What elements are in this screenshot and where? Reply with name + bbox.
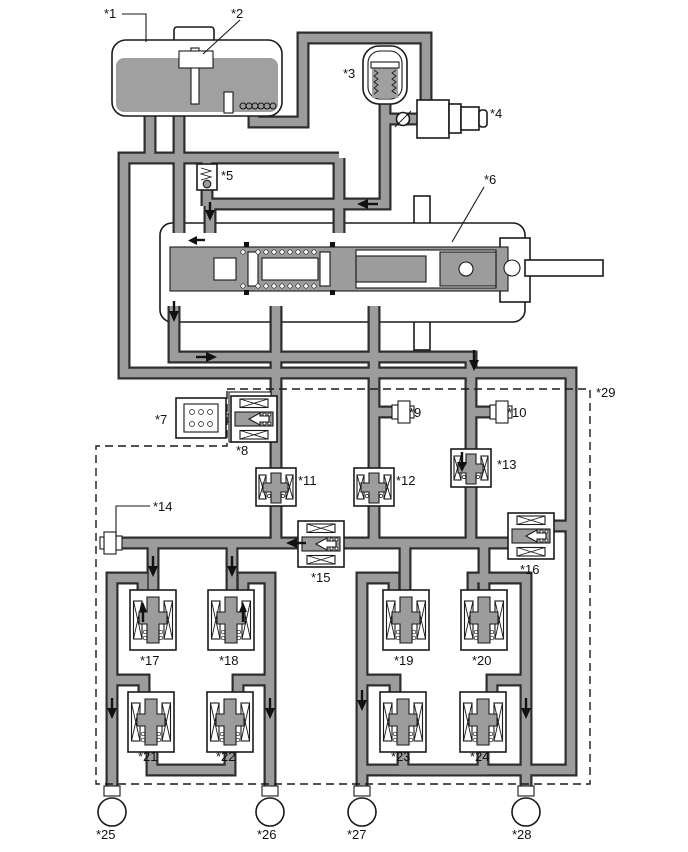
label-27: *27 bbox=[347, 827, 367, 842]
master-cylinder-internals bbox=[170, 242, 520, 295]
label-18: *18 bbox=[219, 653, 239, 668]
solenoid-valve-11 bbox=[256, 468, 296, 506]
pump-motor bbox=[417, 100, 487, 138]
wheel-cylinder-25 bbox=[98, 798, 126, 826]
label-12: *12 bbox=[396, 473, 416, 488]
solenoid-valve-24 bbox=[460, 692, 506, 752]
solenoid-valve-17 bbox=[130, 590, 176, 650]
wheel-cylinders bbox=[98, 786, 540, 826]
label-4: *4 bbox=[490, 106, 502, 121]
regulator-valve bbox=[229, 392, 277, 442]
label-20: *20 bbox=[472, 653, 492, 668]
label-5: *5 bbox=[221, 168, 233, 183]
level-sensor bbox=[179, 51, 213, 68]
relief-valve bbox=[197, 164, 217, 190]
label-23: *23 bbox=[391, 749, 411, 764]
solenoid-valve-12 bbox=[354, 468, 394, 506]
label-13: *13 bbox=[497, 457, 517, 472]
label-9: *9 bbox=[409, 405, 421, 420]
label-8: *8 bbox=[236, 443, 248, 458]
label-15: *15 bbox=[311, 570, 331, 585]
solenoid-valve-16 bbox=[508, 513, 554, 559]
wheel-cylinder-28 bbox=[512, 798, 540, 826]
label-22: *22 bbox=[216, 749, 236, 764]
label-24: *24 bbox=[470, 749, 490, 764]
port-fitting-14 bbox=[100, 532, 122, 554]
accumulator bbox=[363, 46, 407, 104]
label-26: *26 bbox=[257, 827, 277, 842]
label-17: *17 bbox=[140, 653, 160, 668]
solenoid-valve-23 bbox=[380, 692, 426, 752]
label-1: *1 bbox=[104, 6, 116, 21]
label-21: *21 bbox=[138, 749, 158, 764]
label-2: *2 bbox=[231, 6, 243, 21]
wheel-cylinder-27 bbox=[348, 798, 376, 826]
solenoid-valve-18 bbox=[208, 590, 254, 650]
solenoid-valve-20 bbox=[461, 590, 507, 650]
schematic-svg: *1 *2 *3 *4 *5 *6 *7 *8 *9 *10 *11 *12 *… bbox=[0, 0, 688, 852]
label-3: *3 bbox=[343, 66, 355, 81]
label-14: *14 bbox=[153, 499, 173, 514]
label-7: *7 bbox=[155, 412, 167, 427]
solenoid-valve-13 bbox=[451, 449, 491, 487]
label-11: *11 bbox=[298, 473, 317, 488]
label-6: *6 bbox=[484, 172, 496, 187]
label-16: *16 bbox=[520, 562, 540, 577]
label-29: *29 bbox=[596, 385, 616, 400]
solenoid-valve-19 bbox=[383, 590, 429, 650]
label-28: *28 bbox=[512, 827, 532, 842]
label-10: *10 bbox=[507, 405, 527, 420]
wheel-cylinder-26 bbox=[256, 798, 284, 826]
reservoir bbox=[112, 27, 282, 116]
label-19: *19 bbox=[394, 653, 414, 668]
stroke-simulator bbox=[176, 398, 234, 438]
hydraulic-brake-schematic: *1 *2 *3 *4 *5 *6 *7 *8 *9 *10 *11 *12 *… bbox=[0, 0, 688, 852]
solenoid-valve-21 bbox=[128, 692, 174, 752]
label-25: *25 bbox=[96, 827, 116, 842]
solenoid-valve-22 bbox=[207, 692, 253, 752]
